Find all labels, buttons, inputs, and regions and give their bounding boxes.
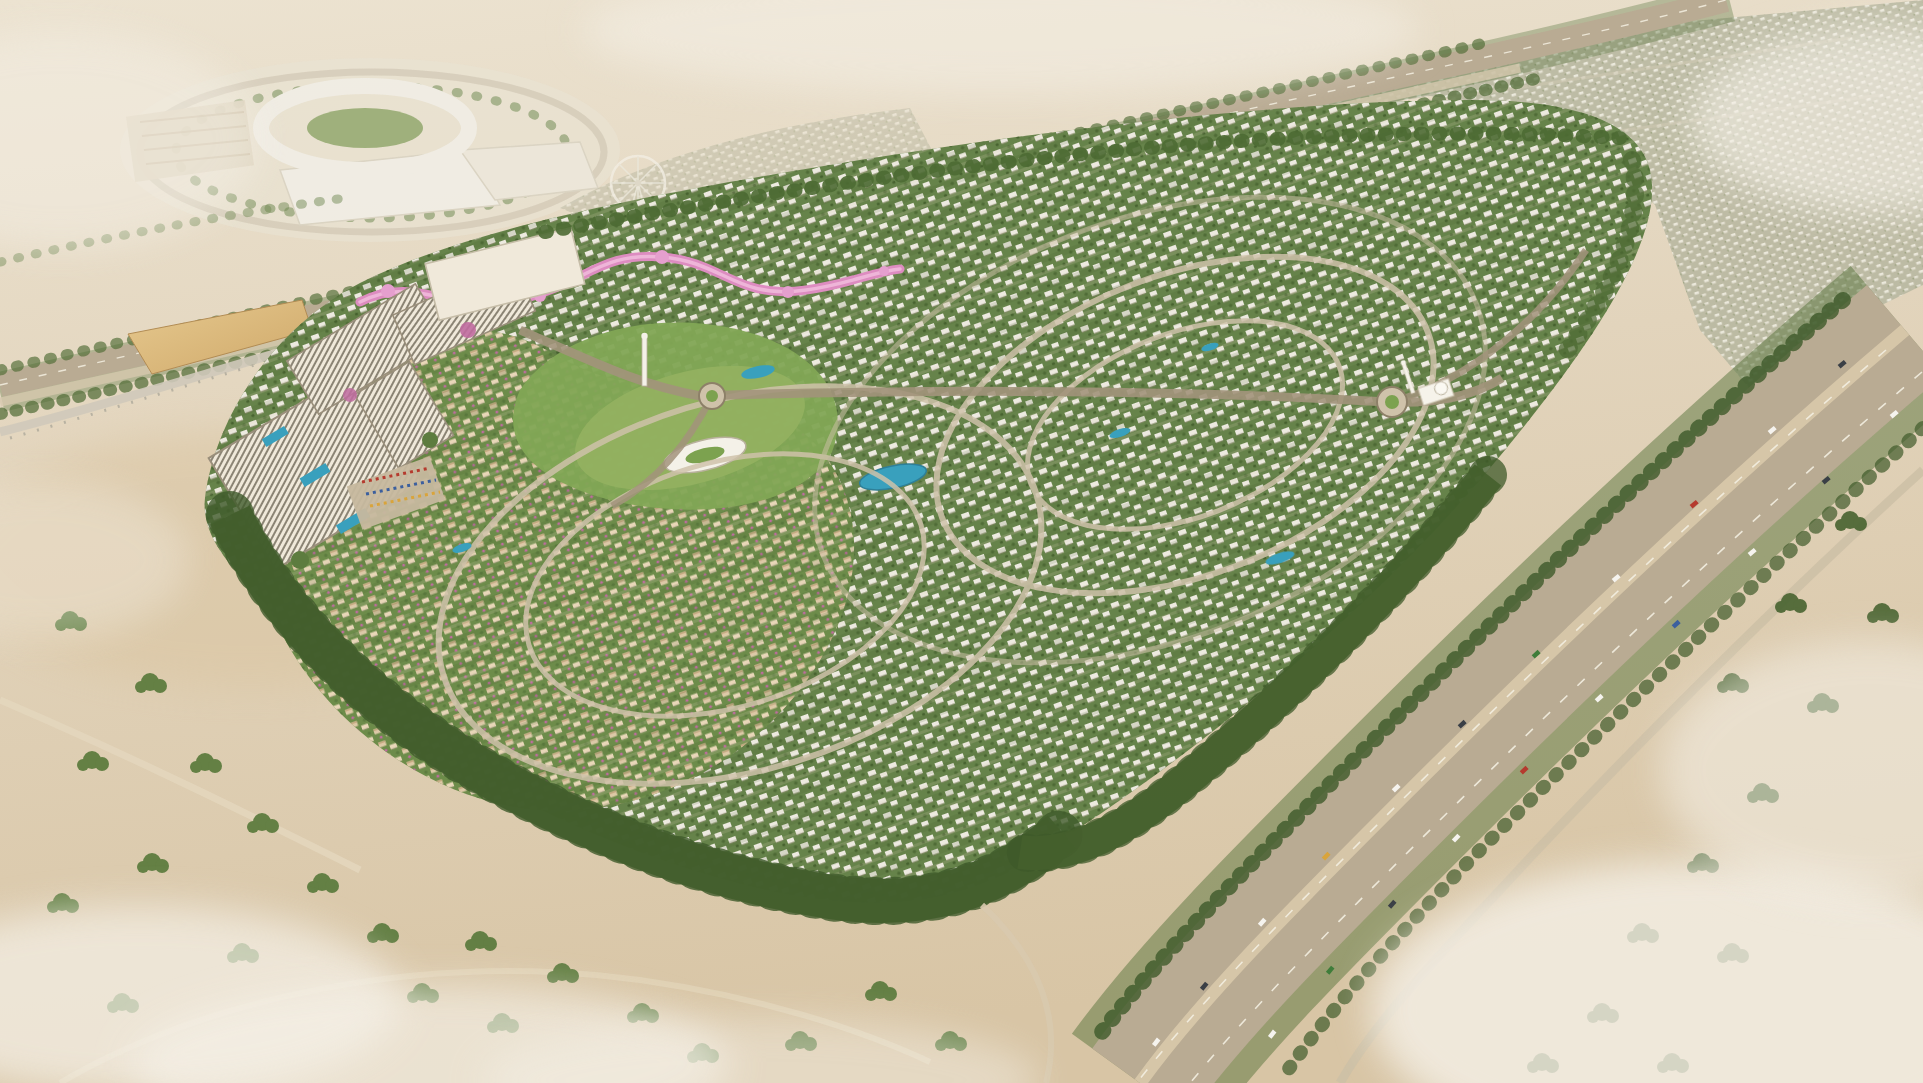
- aerial-render-stage: [0, 0, 1923, 1083]
- promenade-garden: [782, 286, 794, 298]
- flowering-tree: [343, 388, 357, 402]
- flowering-tree: [460, 322, 476, 338]
- podium-garden-tree: [291, 551, 309, 569]
- roundabout-west: [699, 383, 725, 409]
- observation-tower: [641, 333, 647, 386]
- promenade-garden: [655, 250, 669, 264]
- promenade-garden: [381, 284, 395, 298]
- promenade-garden: [879, 266, 889, 276]
- aerial-render: [0, 0, 1923, 1083]
- mall-ring-courtyard: [307, 108, 423, 148]
- podium-garden-tree: [422, 432, 438, 448]
- roundabout-east: [1377, 387, 1407, 417]
